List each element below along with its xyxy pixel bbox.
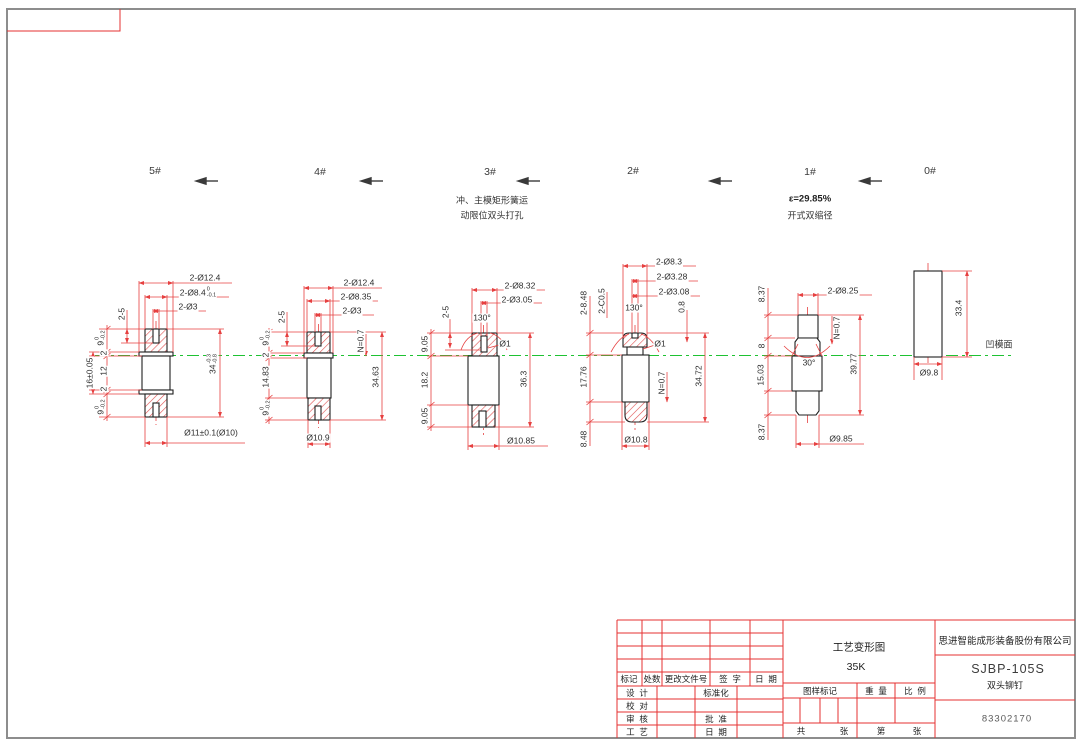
dimension-label: 14.83: [262, 365, 271, 388]
dimension-label: 2-8.48: [580, 290, 589, 316]
dimension-label: 2-5: [278, 310, 287, 324]
dimension-label: 18.2: [421, 371, 430, 390]
dimension-label: 39.77: [850, 352, 859, 375]
dimension-label: 8.37: [758, 285, 767, 304]
pages-sheet1: 张: [840, 725, 849, 737]
corner-block: [7, 9, 120, 31]
dimension-label: 2-Ø12.4: [343, 279, 376, 288]
dimension-label: 2: [262, 352, 271, 359]
row-design: 设 计: [626, 687, 648, 699]
dimension-label: 2-Ø12.4: [189, 274, 222, 283]
dimension-label: Ø9.8: [919, 369, 939, 378]
dimension-label: 9.05: [421, 335, 430, 354]
dimension-label: 8: [758, 343, 767, 350]
dimension-label: Ø10.9: [305, 434, 330, 443]
dimension-label: N=0.7: [833, 316, 842, 341]
rev-col-sign: 签 字: [719, 673, 741, 685]
dimension-label: Ø10.8: [623, 436, 648, 445]
weight-label: 重 量: [865, 685, 887, 697]
part-0-view: [914, 263, 972, 380]
dimension-label: Ø9.85: [828, 435, 853, 444]
row-proofread: 校 对: [626, 700, 648, 712]
rev-col-fileno: 更改文件号: [665, 673, 708, 685]
stage-label-3: 3#: [484, 166, 496, 178]
stage-label-2: 2#: [627, 165, 639, 177]
dimension-label: 2-Ø8.25: [827, 287, 860, 296]
stage-3-note-line1: 冲、主模矩形簧运: [456, 194, 528, 207]
dimension-label: 34-0.3-0.8: [208, 353, 219, 375]
part-name: 双头铆钉: [987, 679, 1023, 692]
stage-label-5: 5#: [149, 165, 161, 177]
doc-title: 工艺变形图: [833, 640, 886, 655]
dimension-label: Ø1: [653, 340, 666, 349]
dimension-label: 30°: [802, 359, 817, 368]
rev-col-count: 处数: [643, 673, 660, 685]
dimension-label: 34.63: [372, 365, 381, 388]
dimension-label: 2: [100, 386, 109, 393]
row-approve: 批 准: [705, 713, 727, 725]
row-standardize: 标准化: [703, 687, 729, 699]
stage-label-0: 0#: [924, 165, 936, 177]
dimension-label: 2-5: [118, 307, 127, 321]
company-name: 思进智能成形装备股份有限公司: [938, 633, 1071, 647]
dimension-label: 90-0.2: [261, 399, 272, 416]
dimension-label: 8.37: [758, 423, 767, 442]
stage-flow-arrows: [196, 178, 882, 184]
row-date: 日 期: [705, 726, 727, 738]
dimension-label: N=0.7: [658, 371, 667, 396]
dimension-label: 9.05: [421, 407, 430, 426]
dimension-label: 2-Ø3.28: [656, 273, 689, 282]
dimension-label: 33.4: [955, 299, 964, 318]
dimension-label: 90-0.2: [96, 398, 107, 415]
model-number: SJBP-105S: [971, 662, 1045, 676]
part-5-view: [89, 281, 245, 447]
dimension-label: 17.76: [580, 365, 589, 388]
mark-row-label: 图样标记: [803, 685, 837, 697]
drawing-sheet: 5# 4# 3# 2# 1# 0# 冲、主模矩形簧运 动限位双头打孔 ε=29.…: [0, 0, 1080, 744]
dimension-label: 0.8: [678, 300, 687, 314]
drawing-number: 83302170: [982, 714, 1032, 725]
dimension-label: 16±0.05: [86, 357, 95, 390]
dimension-label: Ø11±0.1(Ø10): [183, 429, 239, 438]
dimension-label: 90-0.2: [261, 329, 272, 346]
dimension-label: 2-Ø3.08: [658, 288, 691, 297]
dimension-label: 36.3: [520, 370, 529, 389]
dimension-label: Ø1: [498, 340, 511, 349]
dimension-label: 2-Ø8.3: [655, 258, 683, 267]
dimension-label: 2-Ø8.32: [504, 282, 537, 291]
dimension-label: 2-Ø3: [342, 307, 363, 316]
dimension-label: 12: [100, 365, 109, 376]
dimension-label: 2-Ø3.05: [501, 296, 534, 305]
dimension-label: 2: [100, 350, 109, 357]
die-face-label: 凹模面: [985, 338, 1012, 351]
stage-1-note-line2: 开式双缩径: [787, 209, 832, 222]
rev-col-date: 日 期: [755, 673, 777, 685]
dimension-label: 34.72: [695, 364, 704, 387]
stage-label-1: 1#: [804, 166, 816, 178]
stage-label-4: 4#: [314, 166, 326, 178]
doc-subtitle: 35K: [847, 661, 866, 673]
dimension-label: 2-Ø8.40-0.1: [179, 288, 217, 299]
dimension-label: 2-C0.5: [598, 287, 607, 315]
dimension-label: 90-0.2: [96, 329, 107, 346]
dimension-label: 8.48: [580, 430, 589, 449]
dimension-label: 2-5: [442, 305, 451, 319]
dimension-label: 2-Ø8.35: [340, 293, 373, 302]
row-craft: 工 艺: [626, 726, 648, 738]
dimension-label: Ø10.85: [506, 437, 536, 446]
dimension-label: 130°: [472, 314, 492, 323]
scale-label: 比 例: [904, 685, 926, 697]
pages-page: 第: [877, 725, 886, 737]
stage-3-note-line2: 动限位双头打孔: [460, 209, 523, 222]
pages-total: 共: [797, 725, 806, 737]
dimension-label: 2-Ø3: [178, 303, 199, 312]
stage-1-reduction-ratio: ε=29.85%: [789, 194, 831, 205]
dimension-label: N=0.7: [357, 329, 366, 354]
dimension-label: 130°: [624, 304, 644, 313]
dimension-label: 15.03: [757, 363, 766, 386]
pages-sheet2: 张: [913, 725, 922, 737]
rev-col-mark: 标记: [620, 673, 637, 685]
row-review: 审 核: [626, 713, 648, 725]
